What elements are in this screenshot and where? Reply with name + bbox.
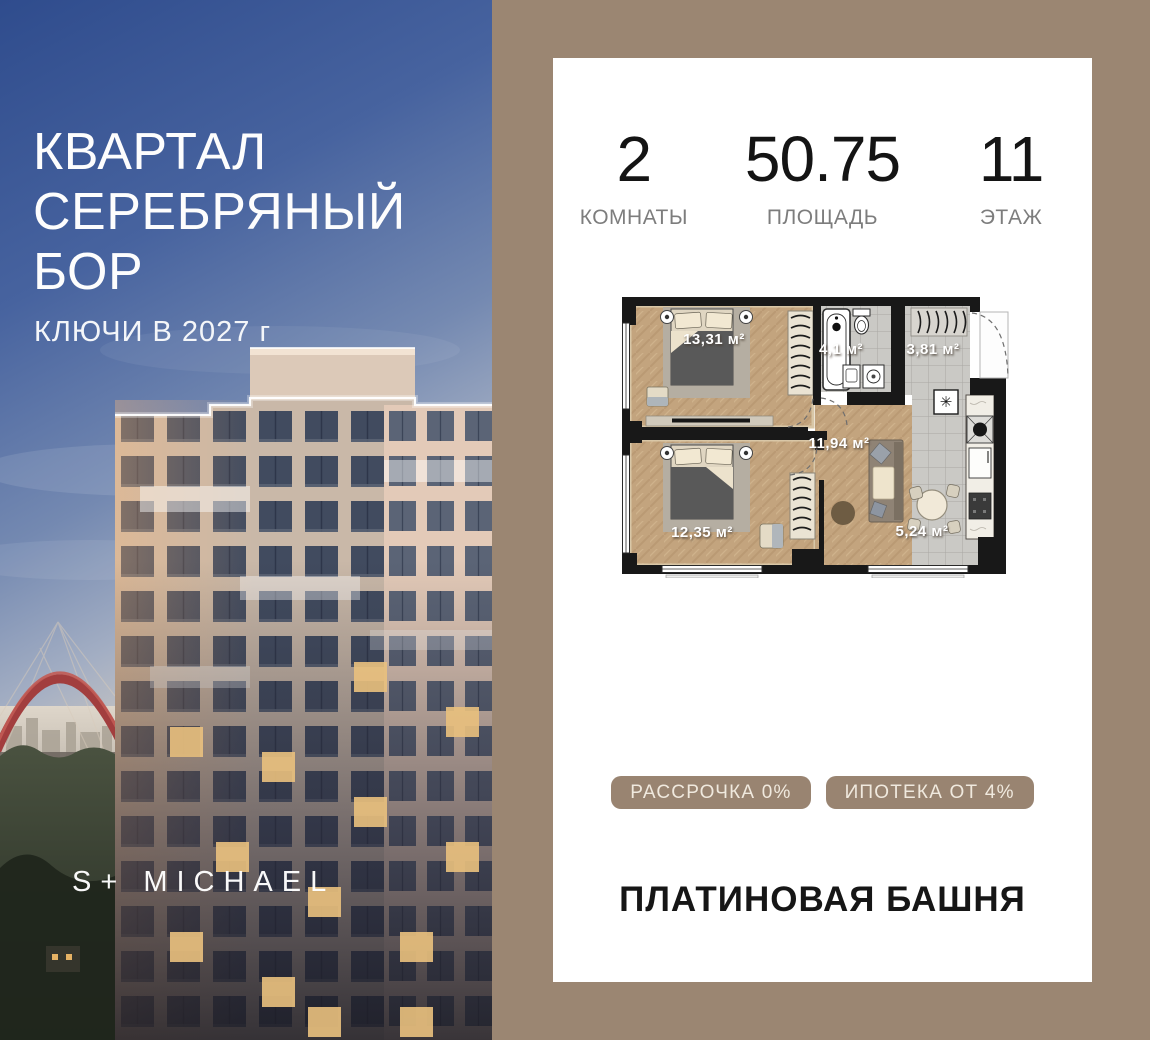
room-area-label: 12,35 м²	[671, 524, 733, 541]
offer-badges: РАССРОЧКА 0% ИПОТЕКА ОТ 4%	[553, 776, 1092, 809]
svg-text:✳: ✳	[940, 394, 953, 411]
installment-badge[interactable]: РАССРОЧКА 0%	[611, 776, 810, 809]
stat-rooms-value: 2	[553, 126, 715, 193]
room-hallway	[911, 308, 967, 336]
photo-panel: КВАРТАЛ СЕРЕБРЯНЫЙ БОР КЛЮЧИ В 2027 г S+…	[0, 0, 492, 1040]
tower-illustration	[115, 348, 492, 1040]
stat-floor: 11 ЭТАЖ	[930, 126, 1092, 230]
stat-floor-value: 11	[930, 126, 1092, 193]
keys-date-note: КЛЮЧИ В 2027 г	[34, 316, 271, 349]
stat-area-value: 50.75	[715, 126, 931, 193]
room-area-label: 3,81 м²	[907, 341, 960, 358]
building-name: ПЛАТИНОВАЯ БАШНЯ	[553, 880, 1092, 920]
project-title-line: БОР	[33, 242, 406, 302]
developer-watermark: S+ MICHAEL	[72, 866, 335, 899]
room-area-label: 4,1 м²	[819, 341, 863, 358]
room-area-label: 5,24 м²	[896, 523, 949, 540]
project-title: КВАРТАЛ СЕРЕБРЯНЫЙ БОР	[33, 122, 406, 302]
stat-area-label: ПЛОЩАДЬ	[715, 206, 931, 230]
stat-area: 50.75 ПЛОЩАДЬ	[715, 126, 931, 230]
project-title-line: СЕРЕБРЯНЫЙ	[33, 182, 406, 242]
stat-floor-label: ЭТАЖ	[930, 206, 1092, 230]
room-area-label: 13,31 м²	[683, 331, 745, 348]
floorplan-image: ✳	[622, 297, 1017, 578]
stats-row: 2 КОМНАТЫ 50.75 ПЛОЩАДЬ 11 ЭТАЖ	[553, 126, 1092, 230]
project-title-line: КВАРТАЛ	[33, 122, 406, 182]
apartment-card: 2 КОМНАТЫ 50.75 ПЛОЩАДЬ 11 ЭТАЖ	[553, 58, 1092, 982]
right-panel: 2 КОМНАТЫ 50.75 ПЛОЩАДЬ 11 ЭТАЖ	[492, 0, 1150, 1040]
stat-rooms-label: КОМНАТЫ	[553, 206, 715, 230]
mortgage-badge[interactable]: ИПОТЕКА ОТ 4%	[826, 776, 1034, 809]
room-area-label: 11,94 м²	[809, 435, 870, 452]
mortgage-badge-label: ИПОТЕКА ОТ 4%	[845, 782, 1015, 804]
installment-badge-label: РАССРОЧКА 0%	[630, 782, 791, 804]
floorplan: ✳	[622, 297, 1017, 578]
stat-rooms: 2 КОМНАТЫ	[553, 126, 715, 230]
